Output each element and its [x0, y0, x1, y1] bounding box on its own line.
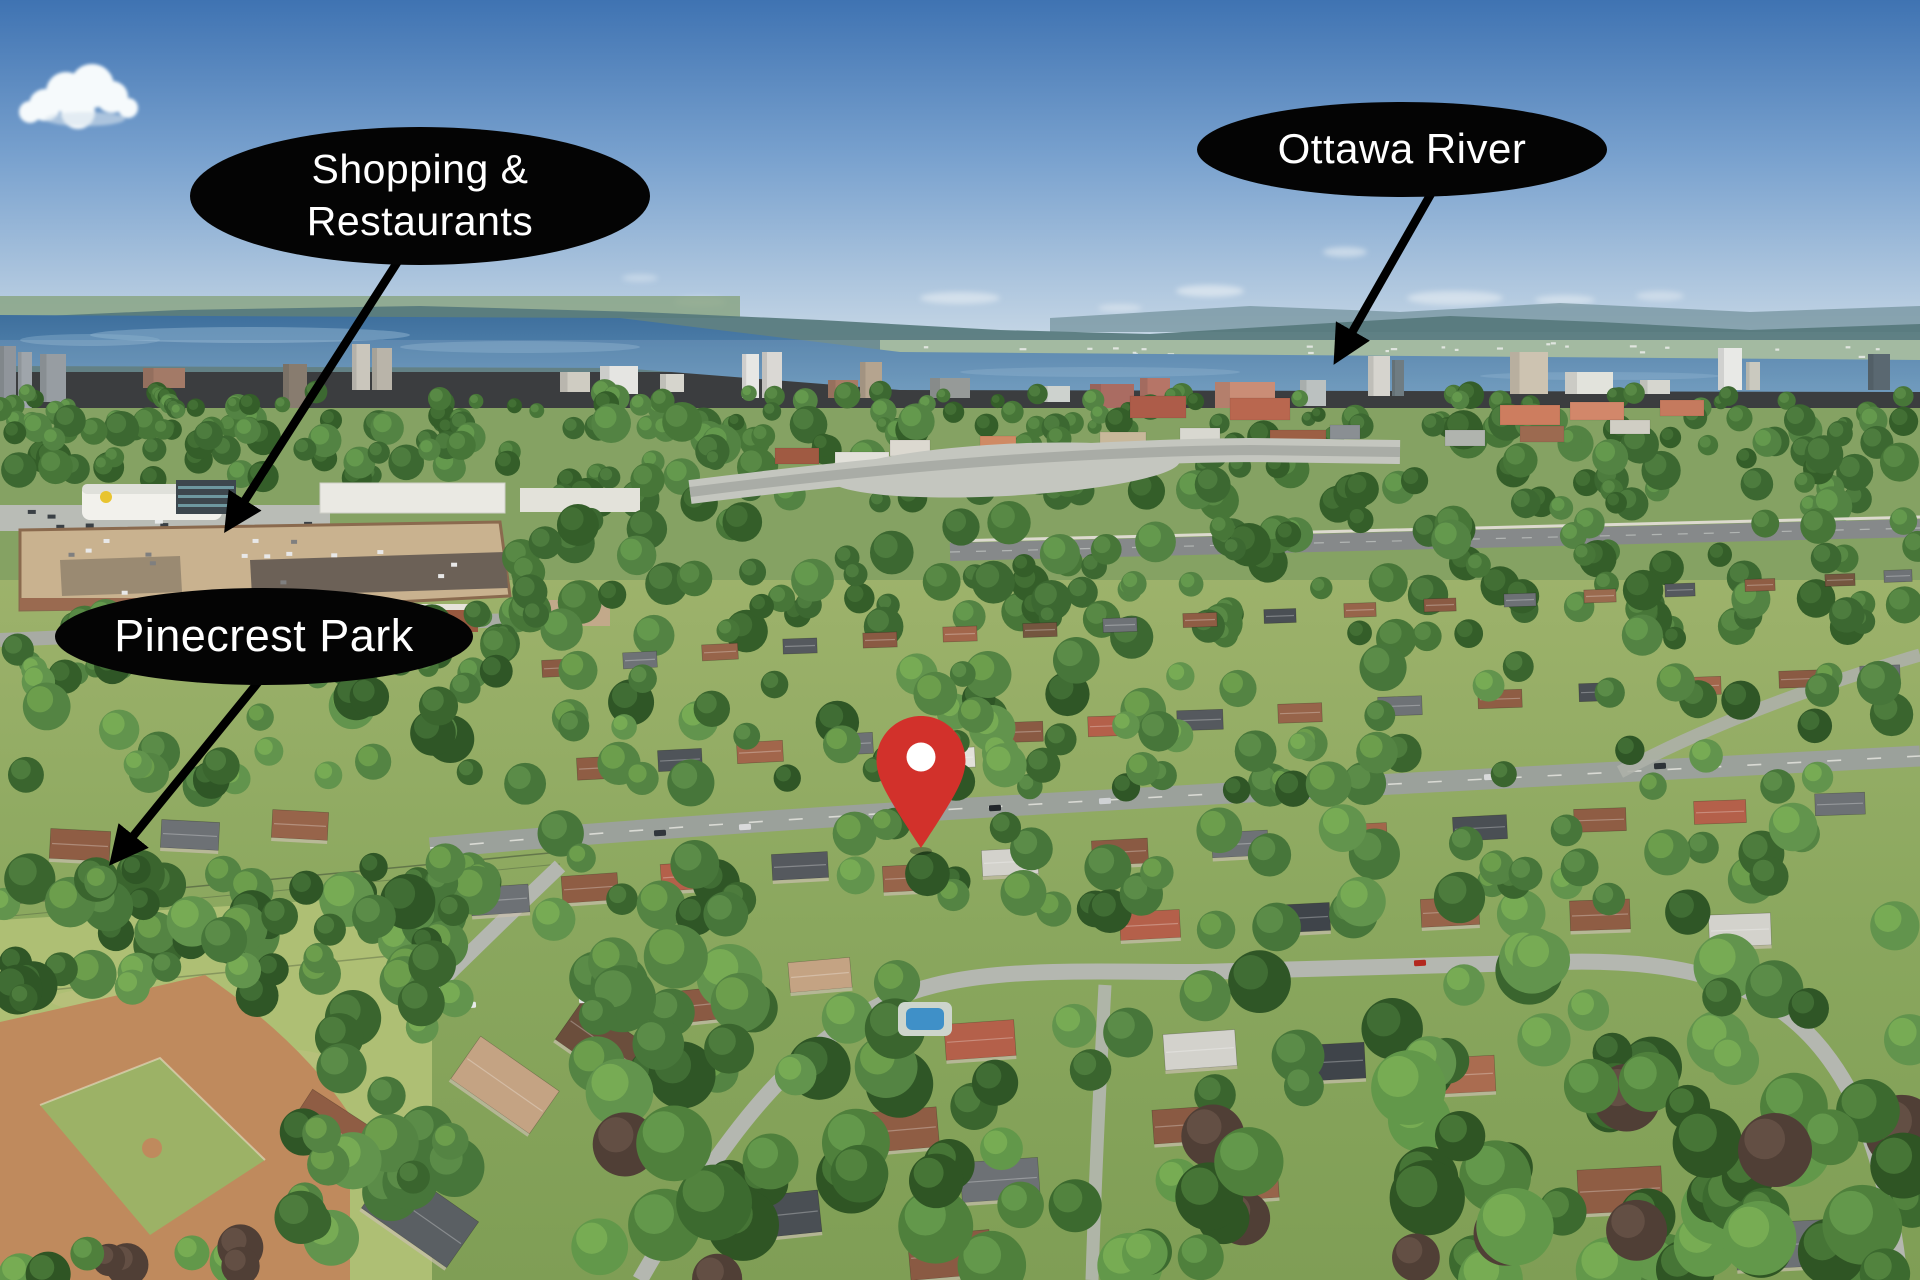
callout-pinecrest-park: Pinecrest Park	[55, 588, 473, 685]
arrow-to-river	[1350, 192, 1432, 336]
callout-shopping-line1: Shopping &	[311, 144, 528, 196]
callout-ottawa-river: Ottawa River	[1197, 102, 1607, 197]
arrow-to-shopping	[242, 258, 400, 505]
aerial-photo: Shopping & Restaurants Ottawa River Pine…	[0, 0, 1920, 1280]
arrow-to-park	[130, 680, 260, 840]
callout-park-label: Pinecrest Park	[114, 608, 414, 665]
location-pin-icon	[877, 716, 966, 855]
callout-shopping-line2: Restaurants	[307, 196, 534, 248]
callout-river-label: Ottawa River	[1278, 123, 1527, 176]
callout-shopping-restaurants: Shopping & Restaurants	[190, 127, 650, 265]
